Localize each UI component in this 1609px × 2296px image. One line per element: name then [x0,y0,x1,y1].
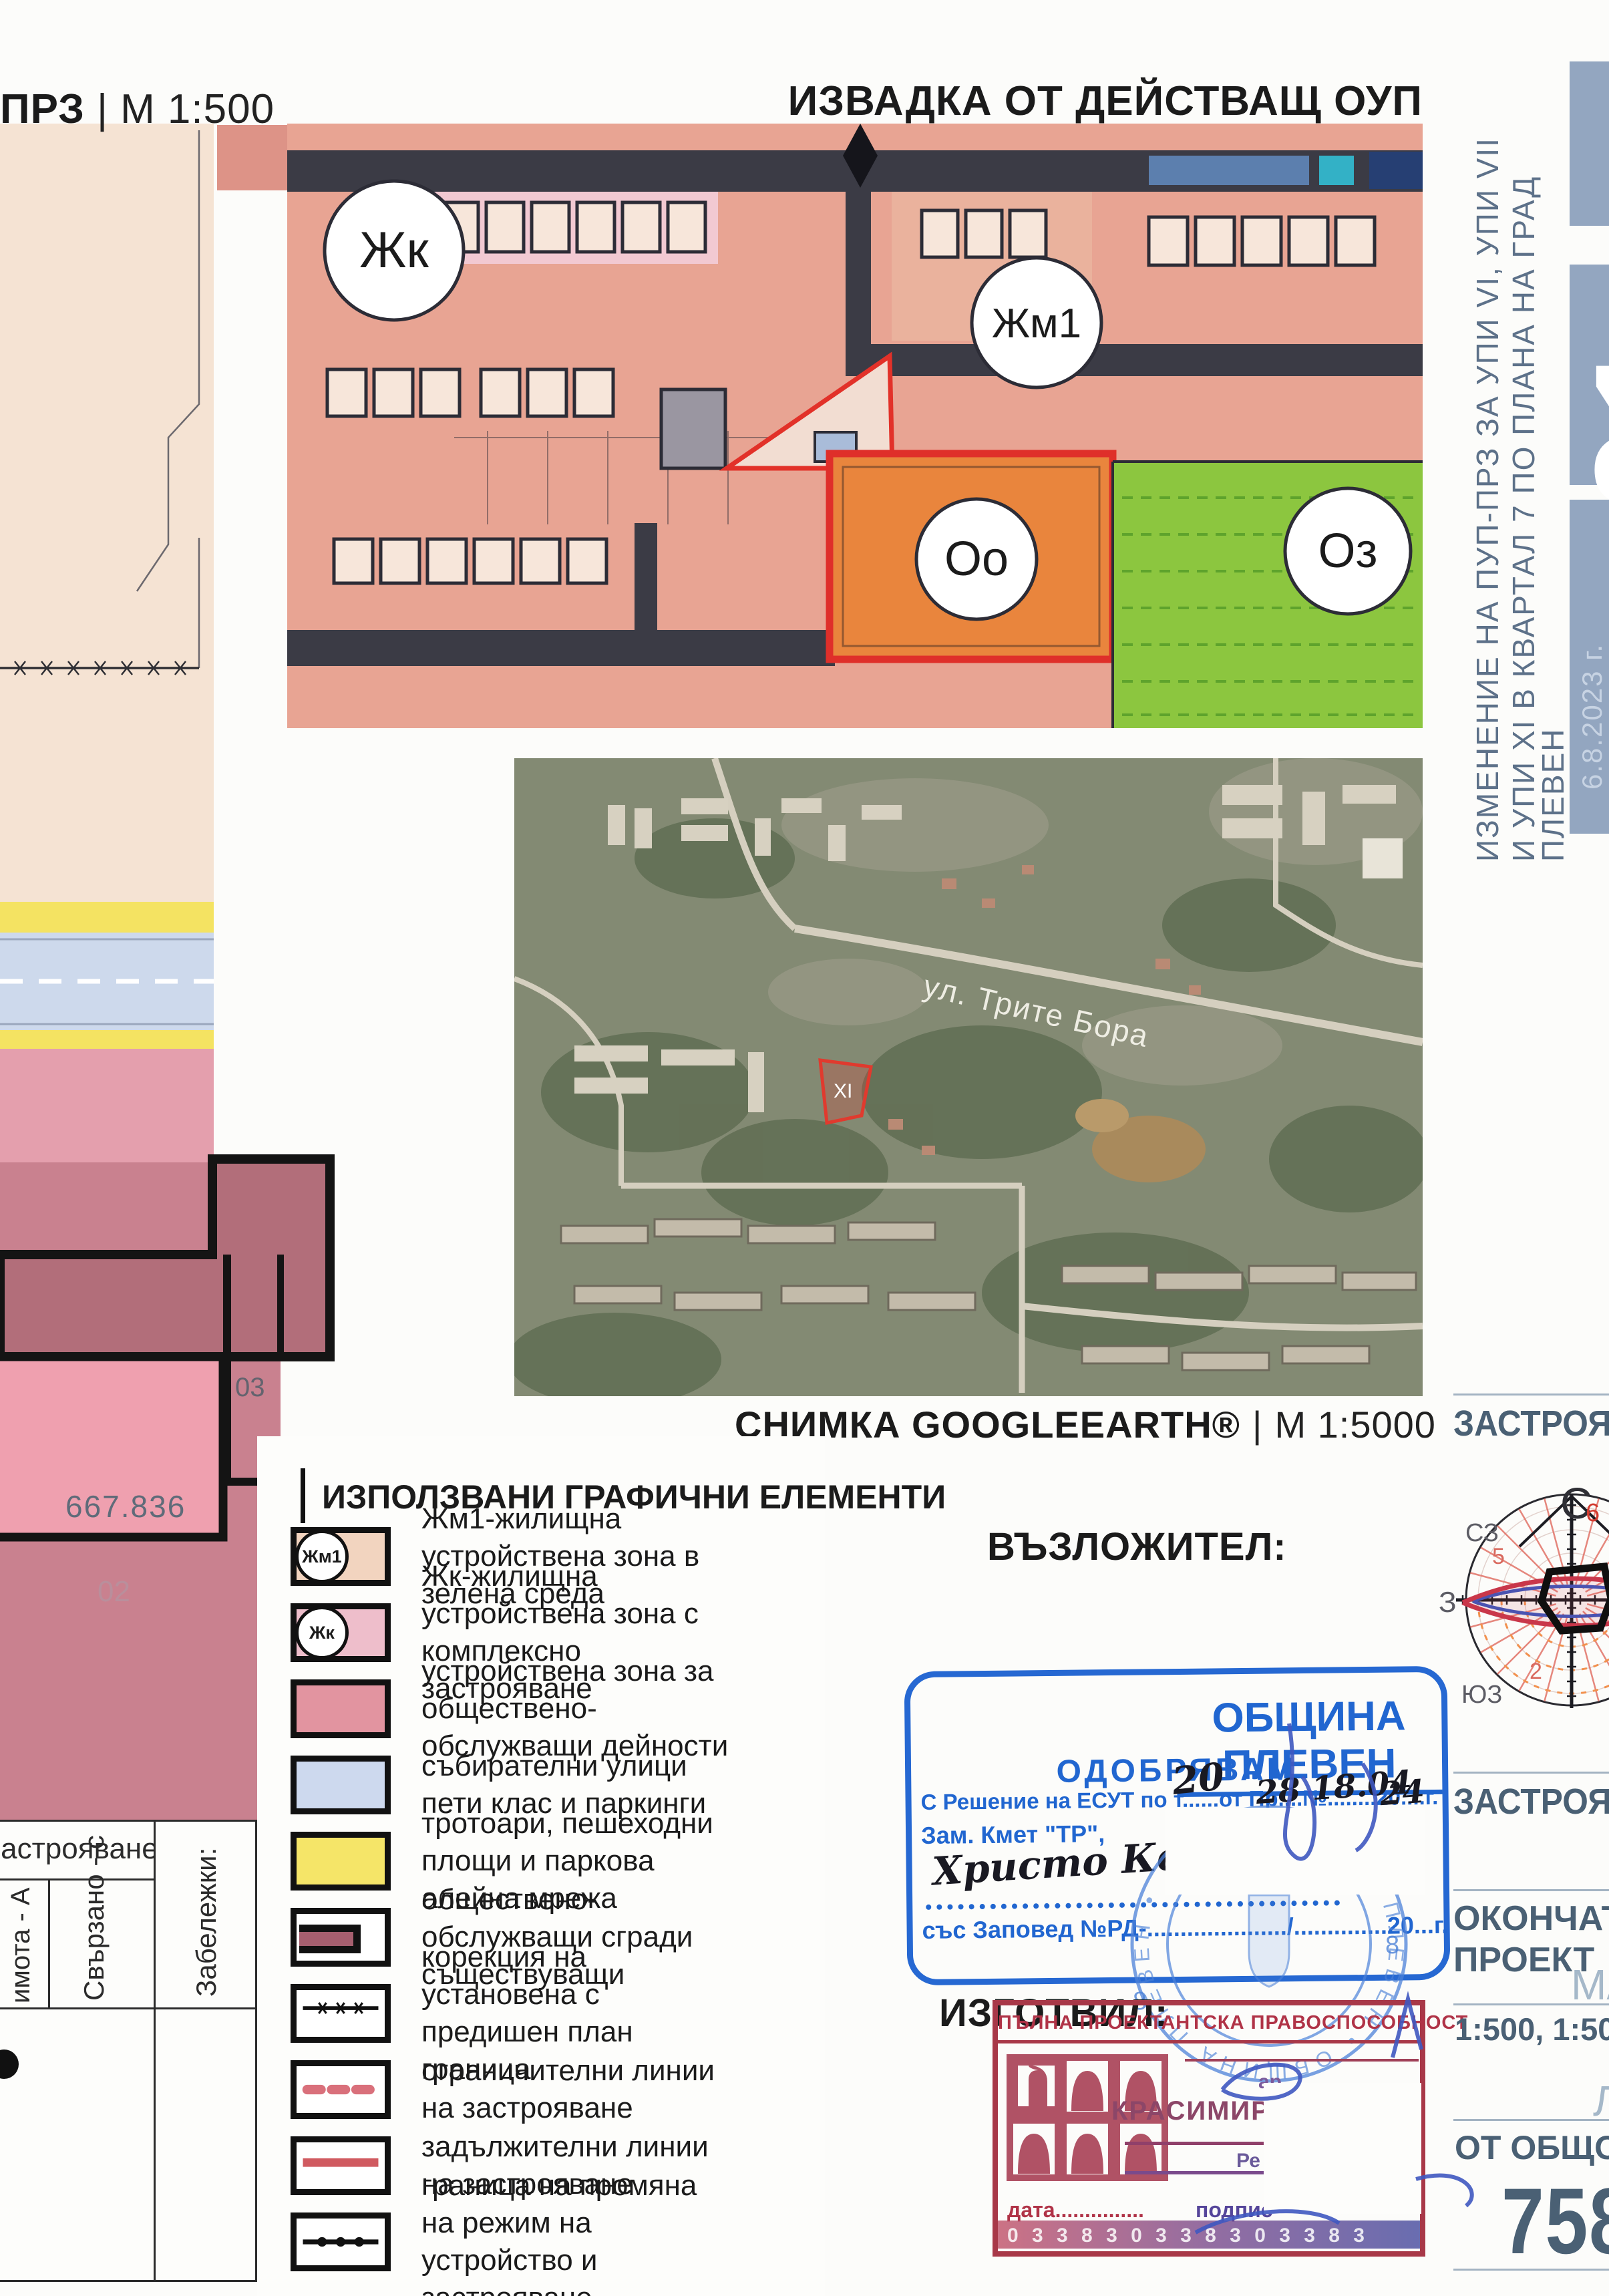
compass-hour-left: 5 [1492,1544,1505,1569]
client-label: ВЪЗЛОЖИТЕЛ: [987,1524,1287,1569]
legend-title-bar [301,1468,305,1523]
parcel-area-label: 667.836 [65,1489,186,1524]
redaction-patch [1166,1808,1425,1895]
street-band [0,933,214,1030]
sheet-number-vertical: 01 [1571,336,1609,514]
satellite-caption: СНИМКА GOOGLEEARTH®|М 1:5000 [735,1403,1423,1446]
hand-mark: 20 [1170,1754,1226,1804]
legend-swatch-line-mandatory [291,2136,391,2195]
zone-label-oo: Оо [944,532,1009,586]
parameters-table: застрояване имота - А Свързано - с Забел… [0,1820,257,2282]
stamp-date-label: дата............... [1007,2198,1144,2223]
plan-sheet: 03 667.836 02 ПРЗ|М 1:500 ИЗВАДКА ОТ ДЕЙ… [0,0,1609,2296]
legend-item: ограничителни линии на застрояване [291,2052,731,2128]
sun-path-compass: С 6 СЗ З ЮЗ 5 2 [1436,1433,1609,1747]
zone-label-zhm1: Жм1 [992,301,1081,347]
legend-items: Жм1Жм1-жилищна устройствена зона в зелен… [291,1518,731,2280]
compass-hour-bottom: 2 [1530,1659,1542,1684]
parcel-02-label: 02 [98,1575,130,1608]
legend-item: граница на промяна на режим на устройств… [291,2204,731,2280]
table-col-b: Свързано - с [78,1835,110,2001]
stamp-sign-label: подпис [1196,2198,1273,2223]
titleblock-scale-label: МАЩАБ [1571,1960,1609,2009]
project-title-line1: ИЗМЕНЕНИЕ НА ПУП-ПРЗ ЗА УПИ VI, УПИ VII [1469,137,1505,862]
titleblock-big-number: 758 [1501,2167,1609,2275]
compass-west: З [1439,1586,1457,1619]
satellite-photo: XI ул. Трите Бора [514,758,1423,1396]
oup-extract-map: Жк Жм1 Оо Оз [287,124,1423,728]
project-title-city: ПЛЕВЕН [1535,727,1571,862]
compass-hour-top: 6 [1586,1499,1600,1527]
satellite-scale: М 1:5000 [1274,1404,1436,1446]
titleblock-of-total: ОТ ОБЩО: 1 [1455,2128,1609,2167]
stamp-municipality-title: ОБЩИНА ПЛЕВЕН [910,1692,1441,1697]
zone-label-oz: Оз [1318,524,1377,578]
table-col-a: имота - А [6,1887,36,2003]
legend-swatch-zone-street [291,1756,391,1814]
sheet-tab-grey [1570,61,1609,226]
titleblock-sheet-label: ЛИСТ [1593,2076,1609,2126]
parcel-03-label: 03 [235,1373,265,1402]
plan-scale: М 1:500 [120,86,275,132]
oup-map-title: ИЗВАДКА ОТ ДЕЙСТВАЩ ОУП [755,77,1423,125]
legend-swatch-line-regime [291,2212,391,2271]
table-notes: Забележки: [190,1848,222,1997]
stamp-serial-band: 0 3 3 8 3 0 3 3 8 3 0 3 3 8 3 [998,2221,1420,2249]
legend-item-text: граница на промяна на режим на устройств… [421,2167,731,2296]
titleblock-phase1: ОКОНЧАТЕЛЕН [1453,1899,1609,1939]
legend-swatch-line-correction [291,1984,391,2043]
legend-swatch-zone-zhm1: Жм1 [291,1527,391,1586]
legend-zone-badge: Жк [295,1606,349,1659]
compass-northwest: СЗ [1465,1519,1499,1547]
sheet-date-vertical: 6.8.2023 г. [1576,643,1608,790]
titleblock-section2: ЗАСТРОЯВАНЕ [1453,1781,1609,1822]
plan-sheet-title: ПРЗ|М 1:500 [0,86,275,133]
titleblock-scales: 1:500, 1:5000 [1455,2011,1609,2047]
legend-item: устройствена зона за обществено-обслужва… [291,1671,731,1747]
legend-item-text: ограничителни линии на застрояване [421,2052,731,2127]
legend-zone-badge: Жм1 [295,1530,349,1583]
stamp-reg: Ре [1236,2150,1260,2172]
legend-swatch-building [291,1908,391,1967]
plan-title-text: ПРЗ [0,86,85,132]
legend-swatch-line-restrict [291,2060,391,2119]
stamp-architect-header: ПЪЛНА ПРОЕКТАНТСКА ПРАВОСПОСОБНОСТ [998,2012,1420,2034]
redaction-patch [1264,2083,1421,2214]
parcel-xi-label: XI [834,1080,852,1102]
compass-southwest: ЮЗ [1461,1681,1502,1709]
sidewalk-strip [0,902,214,933]
zone-label-zhk: Жк [359,222,429,279]
legend-swatch-zone-sidewalk [291,1832,391,1891]
legend-swatch-zone-zhk: Жк [291,1603,391,1662]
legend-item: корекция на установена с предишен план г… [291,1975,731,2052]
legend-swatch-zone-public [291,1679,391,1738]
